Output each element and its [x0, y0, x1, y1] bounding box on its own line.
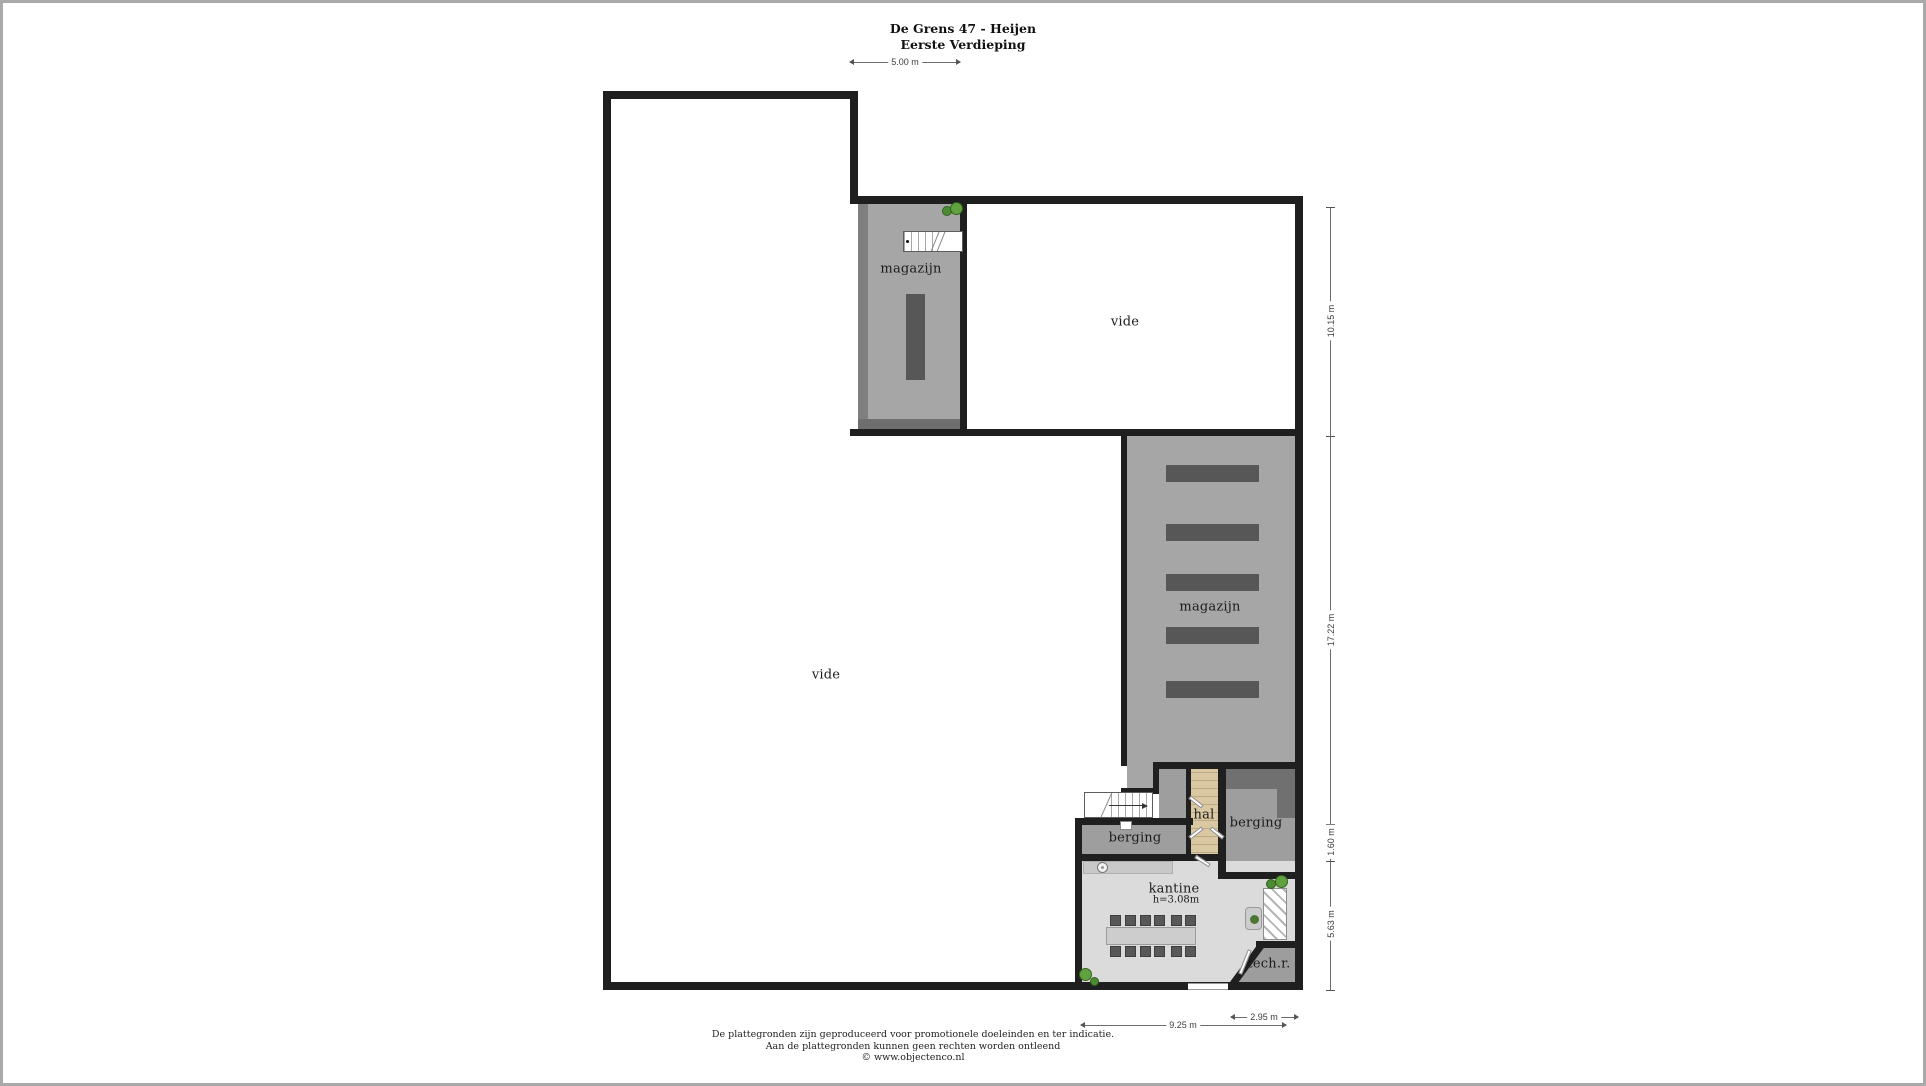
wall-outer-left	[603, 91, 611, 990]
room-label-techroom: tech.r.	[1247, 957, 1290, 972]
room-label-kantine-height: h=3.08m	[1153, 895, 1200, 906]
chair	[1171, 946, 1182, 957]
disclaimer-line2: Aan de plattegronden kunnen geen rechten…	[712, 1041, 1114, 1053]
plant-icon	[1250, 915, 1259, 924]
chair	[1110, 915, 1121, 926]
wall-magazijn-left	[1121, 436, 1127, 766]
dimension-right-top-label: 10.15 m	[1326, 302, 1336, 341]
page-title: De Grens 47 - Heijen Eerste Verdieping	[890, 21, 1036, 52]
wall-upper-section-top	[850, 196, 1303, 204]
plant-icon	[950, 202, 963, 215]
sink-icon	[1097, 862, 1108, 873]
title: De Grens 47 - Heijen	[890, 21, 1036, 36]
magazijn-upper-shade-left	[858, 204, 868, 429]
chair	[1110, 946, 1121, 957]
side-table	[1245, 907, 1262, 930]
staircase-upper-start-dot	[906, 240, 909, 243]
dimension-bottom-kantine-label: 9.25 m	[1166, 1020, 1200, 1030]
room-label-vide-main: vide	[812, 668, 840, 683]
chair	[1171, 915, 1182, 926]
chair	[1140, 915, 1151, 926]
storage-rack	[906, 294, 925, 380]
chair	[1185, 946, 1196, 957]
berging-right-dark-band-side	[1277, 769, 1295, 818]
room-label-magazijn-right: magazijn	[1179, 600, 1240, 615]
dimension-right-middle-label: 17.22 m	[1326, 611, 1336, 650]
dimension-bottom-techroom: 2.95 m	[1231, 1013, 1298, 1023]
chair	[1125, 915, 1136, 926]
storage-rack	[1166, 465, 1259, 482]
wall-magazijn-bottom	[1153, 762, 1303, 769]
wall-hal-right	[1218, 766, 1226, 878]
cabinet-shelving	[1263, 888, 1287, 940]
room-label-hal: hal	[1194, 808, 1215, 823]
subtitle: Eerste Verdieping	[890, 37, 1036, 52]
plant-icon	[1275, 875, 1288, 888]
storage-rack	[1166, 627, 1259, 644]
room-label-berging-left: berging	[1109, 831, 1162, 846]
disclaimer-line3: © www.objectenco.nl	[712, 1052, 1114, 1064]
dimension-bottom-techroom-label: 2.95 m	[1247, 1012, 1281, 1022]
chair	[1185, 915, 1196, 926]
dimension-right-bottom-label: 5.63 m	[1326, 907, 1336, 941]
berging-left-column	[1159, 769, 1186, 818]
room-label-berging-right: berging	[1230, 816, 1283, 831]
wall-berging-left-top	[1075, 818, 1193, 825]
floorplan-page: De Grens 47 - Heijen Eerste Verdieping 5…	[0, 0, 1926, 1086]
chair	[1154, 915, 1165, 926]
wall-hal-left	[1186, 766, 1191, 861]
storage-rack	[1166, 574, 1259, 591]
storage-rack	[1166, 681, 1259, 698]
wall-upper-section-bottom	[850, 429, 1303, 436]
wall-bigrect-right	[850, 91, 858, 204]
wall-outer-right	[1295, 196, 1303, 990]
entrance-opening	[1188, 983, 1228, 990]
conference-table	[1106, 927, 1196, 945]
dimension-right-lower-label: 1.60 m	[1326, 825, 1336, 859]
disclaimer-line1: De plattegronden zijn geproduceerd voor …	[712, 1029, 1114, 1041]
plant-icon	[1090, 977, 1099, 986]
dimension-top: 5.00 m	[850, 58, 960, 68]
wall-outer-top	[603, 91, 858, 99]
dimension-top-label: 5.00 m	[888, 57, 922, 67]
chair	[1154, 946, 1165, 957]
staircase-lower	[1084, 792, 1153, 818]
storage-rack	[1166, 524, 1259, 541]
magazijn-upper-shade-bottom	[858, 419, 960, 429]
wall-berging-right-bottom	[1218, 872, 1303, 879]
wall-column-box	[1120, 821, 1132, 830]
chair	[1140, 946, 1151, 957]
magazijn-right-extension	[1127, 762, 1154, 789]
room-label-vide-upper: vide	[1111, 315, 1139, 330]
wall-block-left	[1075, 818, 1082, 990]
room-label-magazijn-upper: magazijn	[880, 262, 941, 277]
chair	[1125, 946, 1136, 957]
stairs-direction-arrow	[1109, 805, 1143, 806]
staircase-upper	[903, 231, 963, 252]
disclaimer: De plattegronden zijn geproduceerd voor …	[712, 1029, 1114, 1064]
